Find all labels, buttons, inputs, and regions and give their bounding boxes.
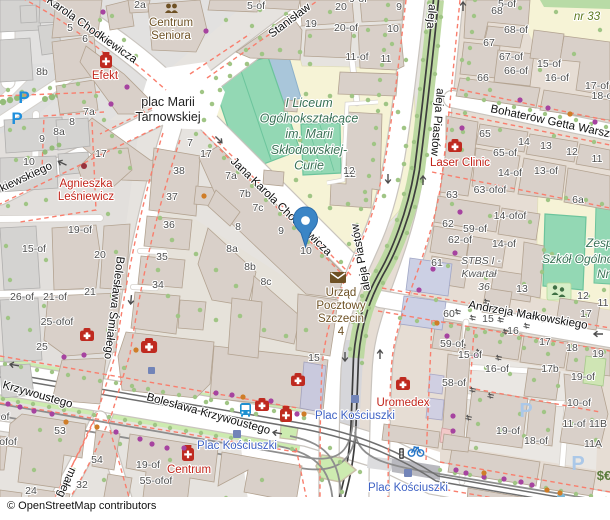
svg-text:$€: $€ <box>597 468 610 483</box>
svg-text:Uromedex: Uromedex <box>376 397 429 409</box>
svg-text:P: P <box>571 453 584 475</box>
svg-text:14-of: 14-of <box>492 238 516 250</box>
svg-text:13: 13 <box>516 283 528 295</box>
svg-text:54: 54 <box>91 454 103 466</box>
svg-text:14-of: 14-of <box>498 167 522 179</box>
svg-text:Centrum: Centrum <box>149 17 193 29</box>
svg-text:P: P <box>519 400 532 422</box>
svg-text:© OpenStreetMap contributors: © OpenStreetMap contributors <box>7 500 157 512</box>
svg-text:14: 14 <box>518 136 530 148</box>
svg-text:plac Marii: plac Marii <box>141 95 195 109</box>
svg-text:8: 8 <box>235 221 241 233</box>
svg-text:9: 9 <box>396 1 402 13</box>
svg-text:21: 21 <box>84 286 96 298</box>
svg-text:8b: 8b <box>36 66 48 78</box>
svg-text:20: 20 <box>335 1 347 13</box>
svg-text:67-of: 67-of <box>499 51 523 63</box>
svg-text:16: 16 <box>507 325 519 337</box>
svg-text:Szczecin: Szczecin <box>318 313 364 325</box>
svg-text:Kwartał: Kwartał <box>461 268 497 280</box>
svg-text:13: 13 <box>540 140 552 152</box>
svg-text:11: 11 <box>592 153 603 165</box>
svg-text:19-of: 19-of <box>571 371 595 383</box>
svg-text:35: 35 <box>156 251 168 263</box>
svg-text:20-of: 20-of <box>334 22 358 34</box>
svg-text:10: 10 <box>23 156 35 168</box>
svg-text:25-ofof: 25-ofof <box>41 316 74 328</box>
svg-text:7a: 7a <box>83 106 95 118</box>
svg-text:55-ofof: 55-ofof <box>140 475 173 487</box>
svg-text:Seniora: Seniora <box>151 30 191 42</box>
svg-text:10-of: 10-of <box>567 397 591 409</box>
svg-text:19-of: 19-of <box>496 425 520 437</box>
svg-text:Plac Kościuszki: Plac Kościuszki <box>315 410 395 422</box>
svg-text:Centrum: Centrum <box>167 464 211 476</box>
svg-text:of: of <box>1 411 10 423</box>
svg-text:12: 12 <box>577 290 589 302</box>
svg-text:68: 68 <box>491 5 503 17</box>
svg-text:17: 17 <box>200 148 212 160</box>
svg-text:25: 25 <box>36 341 48 353</box>
svg-text:10: 10 <box>387 23 399 35</box>
svg-text:Leśniewicz: Leśniewicz <box>58 191 114 203</box>
svg-text:Szkół Ogólnok: Szkół Ogólnok <box>542 252 610 266</box>
svg-text:Pocztowy: Pocztowy <box>316 300 365 312</box>
svg-text:Efekt: Efekt <box>92 70 119 82</box>
svg-text:Tarnowskiej: Tarnowskiej <box>135 110 200 124</box>
svg-text:I Liceum: I Liceum <box>285 96 332 110</box>
svg-text:15-of: 15-of <box>458 349 482 361</box>
svg-text:P: P <box>11 109 22 128</box>
svg-text:58-of: 58-of <box>442 377 466 389</box>
svg-text:18: 18 <box>566 342 578 354</box>
svg-text:61: 61 <box>431 257 443 269</box>
svg-text:7: 7 <box>187 137 193 149</box>
svg-text:63-ofof: 63-ofof <box>474 184 507 196</box>
svg-text:15: 15 <box>482 313 494 325</box>
svg-text:17: 17 <box>95 148 107 160</box>
svg-text:38: 38 <box>173 165 185 177</box>
svg-text:18-of: 18-of <box>524 435 548 447</box>
svg-text:13-of: 13-of <box>534 165 558 177</box>
svg-text:ofof: ofof <box>0 436 17 448</box>
svg-text:53: 53 <box>54 425 66 437</box>
svg-text:11A: 11A <box>584 438 602 450</box>
svg-text:Agnieszka: Agnieszka <box>59 178 113 190</box>
svg-text:15-of: 15-of <box>537 58 561 70</box>
svg-text:34: 34 <box>152 279 164 291</box>
svg-text:21-of: 21-of <box>43 291 67 303</box>
svg-text:P: P <box>18 88 29 107</box>
svg-text:11-of: 11-of <box>562 418 585 430</box>
svg-text:62: 62 <box>442 218 454 230</box>
svg-text:8c: 8c <box>260 276 271 288</box>
svg-text:aleja: aleja <box>424 4 438 30</box>
svg-text:7b: 7b <box>239 188 251 200</box>
svg-text:Laser Clinic: Laser Clinic <box>430 157 490 169</box>
svg-text:Urząd: Urząd <box>326 287 357 299</box>
svg-text:36: 36 <box>478 281 490 293</box>
svg-text:18-o: 18-o <box>591 90 610 102</box>
svg-text:5-of: 5-of <box>247 0 265 12</box>
svg-text:66-of: 66-of <box>504 65 528 77</box>
svg-text:8b: 8b <box>244 261 256 273</box>
svg-text:11: 11 <box>598 297 609 309</box>
svg-text:17: 17 <box>580 308 592 320</box>
svg-text:12: 12 <box>343 165 355 177</box>
svg-text:2a: 2a <box>134 0 146 11</box>
svg-text:7a: 7a <box>225 170 237 182</box>
svg-text:15-of: 15-of <box>22 243 46 255</box>
svg-text:19: 19 <box>305 18 317 30</box>
svg-text:11-of: 11-of <box>345 51 368 63</box>
svg-text:24: 24 <box>25 485 37 497</box>
svg-text:Plac Kościuszki: Plac Kościuszki <box>368 482 448 494</box>
svg-text:63: 63 <box>446 189 458 201</box>
svg-text:5: 5 <box>67 22 73 34</box>
svg-text:17: 17 <box>539 336 551 348</box>
svg-text:7c: 7c <box>252 202 263 214</box>
svg-text:4: 4 <box>338 326 345 338</box>
svg-text:14-ofof: 14-ofof <box>494 210 527 222</box>
svg-text:Curie: Curie <box>294 158 324 172</box>
svg-text:11B: 11B <box>589 418 607 430</box>
svg-text:6a: 6a <box>572 194 584 206</box>
svg-text:9-of: 9-of <box>349 0 367 5</box>
svg-text:im. Marii: im. Marii <box>285 127 333 141</box>
svg-text:12: 12 <box>566 146 578 158</box>
svg-text:65: 65 <box>479 128 491 140</box>
svg-text:65-of: 65-of <box>493 147 517 159</box>
svg-text:20: 20 <box>94 249 106 261</box>
svg-text:9: 9 <box>39 133 45 145</box>
svg-text:nr 33: nr 33 <box>574 11 601 23</box>
svg-text:Plac Kościuszki: Plac Kościuszki <box>197 440 277 452</box>
svg-text:6: 6 <box>82 33 88 45</box>
svg-text:26-of: 26-of <box>10 291 34 303</box>
svg-text:60: 60 <box>443 308 455 320</box>
svg-text:Nr: Nr <box>597 267 610 281</box>
svg-text:37: 37 <box>166 191 178 203</box>
svg-text:8: 8 <box>69 116 75 128</box>
svg-text:Ogólnokształcące: Ogólnokształcące <box>260 112 359 126</box>
svg-text:67: 67 <box>483 37 495 49</box>
svg-text:32: 32 <box>76 479 88 491</box>
svg-text:16-of: 16-of <box>485 363 509 375</box>
svg-text:15: 15 <box>308 352 320 364</box>
svg-text:8a: 8a <box>226 243 238 255</box>
svg-text:16-of: 16-of <box>545 72 569 84</box>
svg-text:68-of: 68-of <box>504 24 528 36</box>
svg-text:17b: 17b <box>541 363 559 375</box>
svg-text:66: 66 <box>477 72 489 84</box>
svg-text:19-of: 19-of <box>68 224 92 236</box>
svg-text:11: 11 <box>381 53 392 65</box>
svg-text:59-of: 59-of <box>463 223 487 235</box>
svg-text:Zespó: Zespó <box>585 236 610 250</box>
svg-text:19: 19 <box>592 348 604 360</box>
svg-text:9: 9 <box>278 225 284 237</box>
svg-text:19-of: 19-of <box>136 459 160 471</box>
svg-text:62-of: 62-of <box>448 234 472 246</box>
svg-text:STBS I -: STBS I - <box>461 255 501 267</box>
svg-text:8a: 8a <box>53 126 65 138</box>
svg-text:Skłodowskiej-: Skłodowskiej- <box>271 143 347 157</box>
svg-text:36: 36 <box>163 219 175 231</box>
